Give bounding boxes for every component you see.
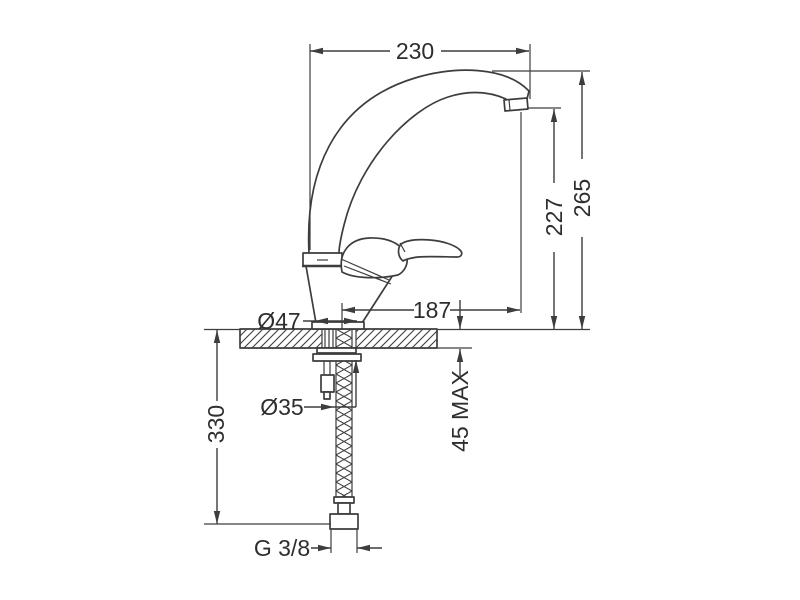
label-outlet-reach: 187 <box>413 297 451 323</box>
fixing-nut <box>321 375 334 392</box>
dimension-outlet-height: 227 <box>541 109 567 329</box>
label-hole-diameter: Ø35 <box>260 394 303 420</box>
handle-lever <box>399 240 462 261</box>
spout <box>302 70 529 266</box>
label-outlet-height: 227 <box>541 198 567 236</box>
extension-lines <box>204 44 590 553</box>
label-spout-reach: 230 <box>396 38 434 64</box>
label-hose-length: 330 <box>203 405 229 443</box>
dimension-overall-height: 265 <box>569 72 595 329</box>
label-max-deck-thickness: 45 MAX <box>447 370 473 452</box>
dimension-hose-length: 330 <box>203 330 229 524</box>
mounting-shank <box>325 329 352 348</box>
handle <box>341 238 462 284</box>
dimension-spout-reach: 230 <box>310 38 529 64</box>
faucet-dimension-drawing: 230 265 227 187 Ø47 Ø35 33 <box>0 0 800 600</box>
technical-drawing-canvas: 230 265 227 187 Ø47 Ø35 33 <box>0 0 800 600</box>
dimension-thread-size: G 3/8 <box>254 535 382 561</box>
hose-connection-nut <box>330 514 358 529</box>
label-overall-height: 265 <box>569 179 595 217</box>
handle-dome <box>341 238 407 278</box>
label-thread-size: G 3/8 <box>254 535 310 561</box>
faucet-base <box>312 322 364 329</box>
aerator <box>504 98 528 111</box>
label-base-diameter: Ø47 <box>257 308 300 334</box>
